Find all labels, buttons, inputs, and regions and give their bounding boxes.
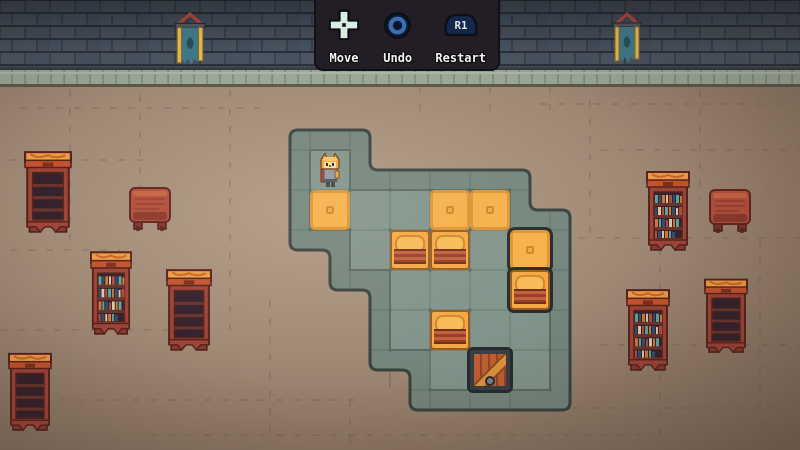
r1-button-text: R1	[454, 19, 467, 32]
hint-restart-label: Restart	[435, 51, 486, 65]
hint-move-label: Move	[330, 51, 359, 65]
circle-button-icon	[383, 6, 412, 44]
game-screen: Move Undo R1 Restart	[0, 0, 800, 450]
hint-move[interactable]: Move	[328, 6, 360, 65]
hint-undo[interactable]: Undo	[383, 6, 412, 65]
dpad-icon	[328, 6, 360, 44]
control-hint-panel: Move Undo R1 Restart	[314, 0, 500, 71]
hint-undo-label: Undo	[383, 51, 412, 65]
hint-restart[interactable]: R1 Restart	[435, 6, 486, 65]
r1-button-icon: R1	[443, 6, 479, 44]
